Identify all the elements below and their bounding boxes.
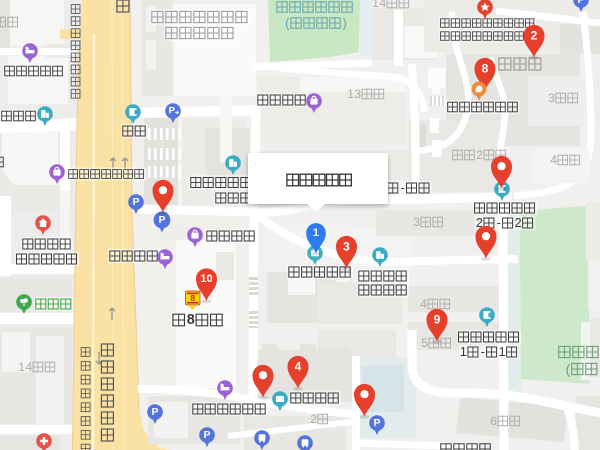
svg-text:8: 8: [482, 62, 489, 76]
svg-text:-: -: [481, 345, 485, 359]
svg-text:1: 1: [313, 227, 319, 239]
svg-text:4: 4: [295, 360, 302, 374]
svg-text:8: 8: [187, 312, 195, 328]
svg-text:2: 2: [531, 29, 538, 43]
svg-text:4: 4: [550, 153, 557, 167]
svg-text:P: P: [169, 106, 176, 117]
svg-text:1: 1: [18, 360, 25, 374]
svg-text:(: (: [285, 16, 290, 31]
svg-text:): ): [343, 16, 347, 31]
svg-text:3: 3: [343, 240, 350, 254]
svg-text:P: P: [158, 214, 165, 226]
svg-text:(: (: [566, 361, 571, 377]
svg-text:2: 2: [310, 412, 317, 426]
svg-text:1: 1: [460, 345, 467, 359]
svg-text:P: P: [577, 0, 584, 6]
svg-text:P: P: [203, 429, 210, 441]
svg-text:-: -: [401, 181, 405, 195]
svg-text:9: 9: [434, 313, 441, 327]
svg-text:4: 4: [379, 0, 386, 10]
svg-text:1: 1: [499, 345, 506, 359]
svg-text:4: 4: [25, 360, 32, 374]
svg-text:5: 5: [421, 336, 428, 350]
svg-text:3: 3: [548, 91, 555, 105]
svg-text:10: 10: [200, 273, 212, 285]
svg-text:8: 8: [190, 293, 195, 303]
svg-text:3: 3: [354, 87, 361, 101]
svg-text:3: 3: [413, 215, 420, 229]
svg-text:P: P: [373, 417, 380, 429]
svg-text:1: 1: [347, 87, 354, 101]
svg-text:2: 2: [515, 216, 522, 230]
svg-text:P: P: [132, 196, 139, 208]
svg-text:1: 1: [372, 0, 379, 10]
svg-text:2: 2: [476, 148, 483, 162]
svg-text:6: 6: [490, 414, 497, 428]
svg-text:-: -: [497, 216, 501, 230]
svg-text:P: P: [151, 406, 158, 418]
svg-text:4: 4: [420, 297, 427, 311]
